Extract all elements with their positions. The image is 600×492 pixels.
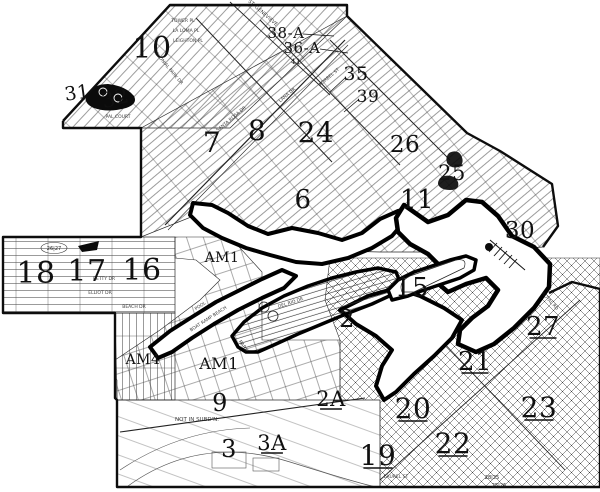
zone-label-25: 25 bbox=[438, 161, 466, 185]
zone-label-36A: 36-A bbox=[284, 39, 321, 57]
zone-label-22: 22 bbox=[435, 427, 472, 460]
sheet-ref-0: 26|27 bbox=[47, 246, 61, 252]
zone-label-39: 39 bbox=[357, 87, 380, 107]
street-label-11: BEACH DR bbox=[122, 304, 145, 310]
zone-label-6: 6 bbox=[294, 185, 311, 215]
zone-label-26: 26 bbox=[390, 132, 420, 158]
region-bottom-strip bbox=[117, 400, 380, 487]
zone-label-16: 16 bbox=[122, 253, 161, 288]
zone-label-3: 3 bbox=[221, 435, 237, 463]
zone-label-9: 9 bbox=[212, 389, 228, 417]
sheet-ref-2: 25|26 bbox=[492, 483, 506, 489]
zone-label-3A: 3A bbox=[257, 431, 287, 455]
street-label-1: TOWER PL bbox=[170, 18, 195, 24]
zone-label-15: 15 bbox=[395, 273, 429, 303]
scanned-map-page: 1031327824626251130353938-A36-A411817161… bbox=[0, 0, 600, 492]
zone-label-AM1-park: AM1 bbox=[198, 354, 239, 373]
street-label-10: ELLIOT DR bbox=[88, 290, 112, 296]
bridge-blob bbox=[485, 243, 493, 251]
zone-label-2: 2 bbox=[339, 305, 355, 333]
zone-label-18: 18 bbox=[16, 256, 55, 291]
zone-label-19: 19 bbox=[360, 439, 397, 472]
zone-label-11: 11 bbox=[400, 185, 434, 215]
zone-label-AM4: AM4 bbox=[125, 352, 161, 368]
map-canvas: 1031327824626251130353938-A36-A411817161… bbox=[0, 0, 600, 492]
street-label-8: PAL COURT bbox=[106, 114, 131, 120]
zone-label-2A: 2A bbox=[316, 387, 346, 411]
street-label-17: LAUREL ST bbox=[384, 474, 409, 480]
zone-label-31: 31 bbox=[63, 80, 91, 105]
zone-label-30: 30 bbox=[505, 218, 535, 244]
street-label-9: BETTY DR bbox=[93, 276, 115, 282]
zone-label-41: 41 bbox=[291, 58, 301, 66]
zone-label-23: 23 bbox=[521, 391, 558, 424]
zone-label-20: 20 bbox=[395, 392, 432, 425]
zone-label-24: 24 bbox=[298, 116, 335, 149]
street-label-2: LA LOMA PL bbox=[173, 28, 200, 34]
street-label-16: NOT IN SUBD'N. bbox=[175, 417, 219, 423]
zone-label-AM1-lagoon: AM1 bbox=[204, 250, 240, 266]
zone-label-8: 8 bbox=[248, 114, 266, 147]
street-label-3: LEIGHTON PL bbox=[173, 38, 203, 44]
sheet-ref-1: 28|25 bbox=[485, 475, 499, 481]
zone-label-35: 35 bbox=[343, 63, 368, 85]
zone-label-17: 17 bbox=[67, 254, 106, 289]
